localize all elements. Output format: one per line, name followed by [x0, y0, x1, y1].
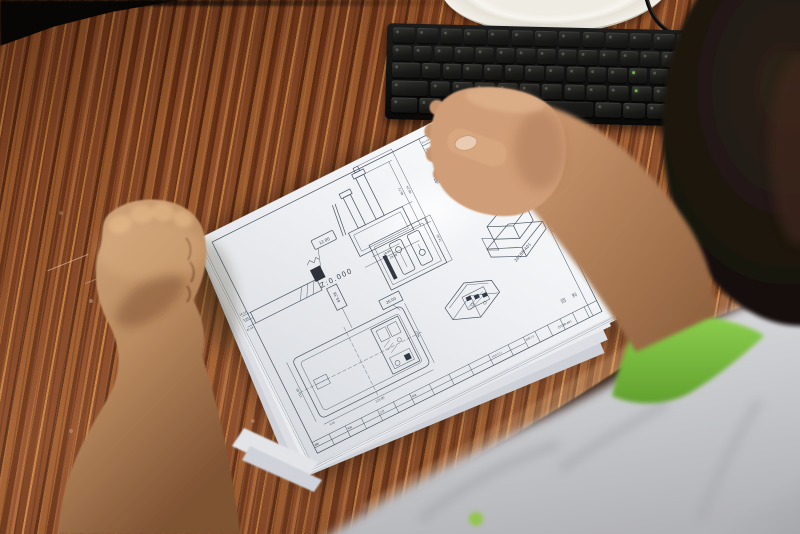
right-hand — [422, 83, 566, 217]
hand-shading — [514, 110, 566, 190]
arm-highlight — [95, 220, 205, 280]
person-photo-layer — [0, 0, 800, 534]
green-vest-glimpse — [469, 512, 483, 526]
